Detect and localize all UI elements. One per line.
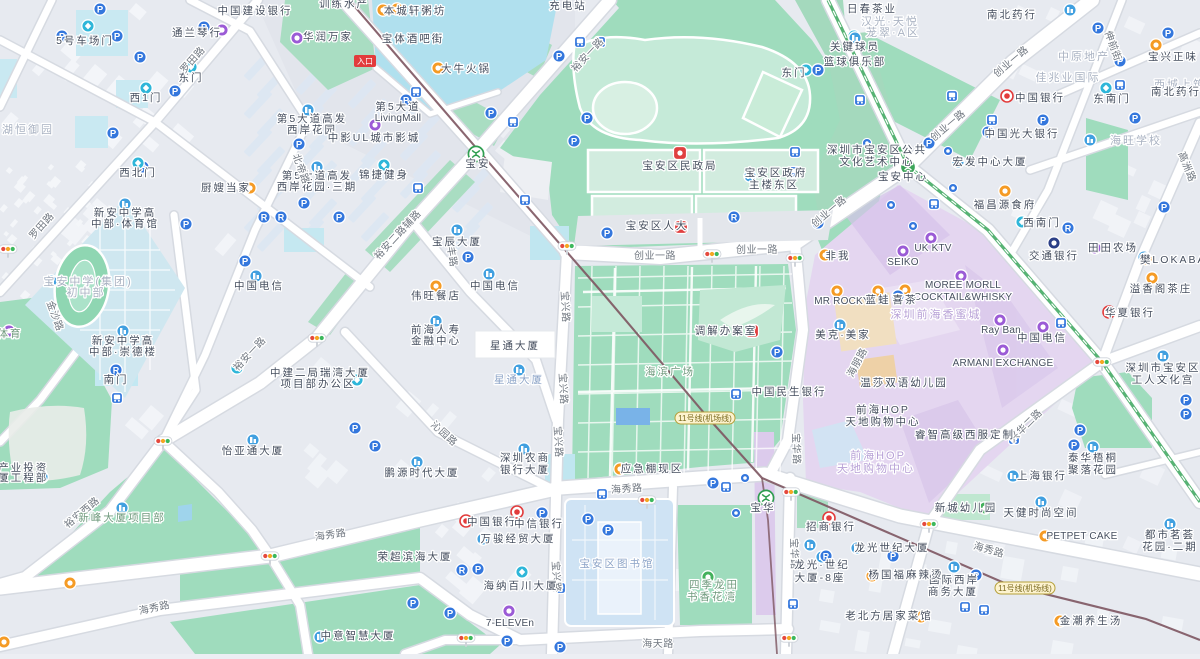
svg-text:新城幼儿园: 新城幼儿园 (935, 501, 998, 514)
svg-text:第5大道: 第5大道 (375, 100, 420, 113)
svg-text:田田农场: 田田农场 (1088, 241, 1138, 254)
svg-text:通兰琴行: 通兰琴行 (172, 26, 222, 39)
svg-text:鹏源时代大厦: 鹏源时代大厦 (385, 466, 460, 479)
svg-text:初中部: 初中部 (67, 285, 106, 299)
svg-text:中国建设银行: 中国建设银行 (218, 4, 293, 17)
svg-text:宝安区民政局: 宝安区民政局 (643, 159, 718, 172)
svg-text:中信银行: 中信银行 (514, 517, 564, 530)
svg-text:COCKTAIL&WHISKY: COCKTAIL&WHISKY (914, 292, 1013, 303)
svg-text:宝华: 宝华 (751, 501, 776, 514)
svg-text:11号线(机场线): 11号线(机场线) (678, 413, 732, 423)
svg-text:美克·美家: 美克·美家 (815, 328, 871, 341)
svg-text:5号车场门: 5号车场门 (56, 34, 114, 47)
svg-text:天地购物中心: 天地购物中心 (837, 461, 915, 475)
svg-text:ARMANI EXCHANGE: ARMANI EXCHANGE (953, 358, 1054, 369)
svg-text:主楼东区: 主楼东区 (749, 178, 799, 191)
svg-text:宝安: 宝安 (466, 157, 491, 170)
svg-text:海滨广场: 海滨广场 (645, 365, 695, 378)
svg-text:MR ROCKY: MR ROCKY (814, 296, 870, 307)
svg-text:本城轩粥坊: 本城轩粥坊 (384, 4, 447, 17)
svg-text:宝安中心: 宝安中心 (878, 170, 928, 183)
svg-text:樊LOKABAR: 樊LOKABAR (1140, 253, 1200, 266)
svg-text:西岸花园·三期: 西岸花园·三期 (277, 180, 358, 193)
svg-text:大厦-8座: 大厦-8座 (795, 571, 846, 584)
svg-text:蓝蛙: 蓝蛙 (866, 293, 891, 306)
svg-text:宝兴正味: 宝兴正味 (1148, 50, 1198, 63)
svg-text:龙光世纪大厦: 龙光世纪大厦 (855, 541, 930, 554)
svg-text:中部·崇德楼: 中部·崇德楼 (89, 345, 157, 358)
svg-text:怡亚通大厦: 怡亚通大厦 (222, 444, 285, 457)
svg-text:深圳前海香蜜城: 深圳前海香蜜城 (891, 307, 982, 321)
svg-text:都市茗荟: 都市茗荟 (1145, 528, 1195, 541)
svg-text:南北药行: 南北药行 (1151, 85, 1200, 98)
svg-text:中部·体育馆: 中部·体育馆 (91, 217, 159, 230)
svg-text:星通大厦: 星通大厦 (494, 373, 544, 386)
svg-text:PETPET CAKE: PETPET CAKE (1047, 531, 1118, 542)
svg-text:交通银行: 交通银行 (1029, 249, 1079, 262)
svg-text:龙光·世纪: 龙光·世纪 (794, 558, 850, 571)
svg-text:荣超滨海大厦: 荣超滨海大厦 (378, 550, 453, 563)
svg-text:福昌源食府: 福昌源食府 (974, 198, 1037, 211)
svg-text:应急棚现区: 应急棚现区 (621, 462, 684, 475)
svg-text:宝安中学(集团): 宝安中学(集团) (43, 274, 132, 288)
svg-text:非我: 非我 (826, 250, 851, 262)
svg-text:上海银行: 上海银行 (1017, 469, 1067, 482)
svg-text:佳兆业国际: 佳兆业国际 (1036, 70, 1101, 84)
svg-text:金潮养生汤: 金潮养生汤 (1060, 614, 1123, 627)
svg-text:老北方居家菜馆: 老北方居家菜馆 (845, 609, 933, 622)
svg-text:南北药行: 南北药行 (987, 8, 1037, 21)
svg-text:7-ELEVEn: 7-ELEVEn (486, 618, 534, 629)
svg-text:书香花湾: 书香花湾 (687, 590, 737, 603)
svg-text:UK KTV: UK KTV (914, 243, 951, 254)
svg-text:商务大厦: 商务大厦 (928, 585, 978, 598)
svg-text:东门: 东门 (782, 66, 807, 79)
svg-text:大厦工程部: 大厦工程部 (0, 471, 48, 484)
svg-text:四季龙田: 四季龙田 (689, 578, 739, 591)
svg-text:工人文化宫: 工人文化宫 (1132, 373, 1195, 386)
svg-text:大牛火锅: 大牛火锅 (441, 62, 491, 75)
svg-text:中原地产: 中原地产 (1058, 49, 1110, 63)
svg-text:体育: 体育 (0, 327, 23, 340)
svg-text:东南门: 东南门 (1093, 92, 1131, 105)
svg-text:中国电信: 中国电信 (1017, 331, 1067, 344)
svg-text:创业一路: 创业一路 (736, 243, 778, 256)
svg-text:调解办案室: 调解办案室 (695, 324, 758, 337)
svg-text:聚落花园: 聚落花园 (1068, 463, 1118, 476)
svg-text:11号线(机场线): 11号线(机场线) (998, 583, 1052, 593)
svg-text:深圳市宝安区公共: 深圳市宝安区公共 (827, 143, 927, 156)
svg-text:中国民生银行: 中国民生银行 (752, 385, 827, 398)
svg-text:睿智高级西服定制: 睿智高级西服定制 (915, 428, 1015, 441)
svg-text:溢香阁茶庄: 溢香阁茶庄 (1130, 282, 1193, 295)
svg-text:茏翠·A区: 茏翠·A区 (866, 26, 920, 39)
svg-text:锦捷健身: 锦捷健身 (359, 168, 409, 181)
svg-text:喜茶: 喜茶 (893, 293, 918, 306)
svg-text:海纳百川大厦: 海纳百川大厦 (484, 579, 559, 592)
svg-text:西南门: 西南门 (1023, 216, 1061, 229)
svg-text:星通大厦: 星通大厦 (490, 339, 540, 352)
svg-text:杨国福麻辣烫: 杨国福麻辣烫 (869, 568, 944, 581)
svg-text:SEIKO: SEIKO (887, 257, 919, 268)
svg-text:篮球俱乐部: 篮球俱乐部 (824, 55, 887, 68)
svg-text:宝华路: 宝华路 (789, 433, 803, 465)
svg-text:华润万家: 华润万家 (303, 30, 353, 43)
svg-text:宝安区政府: 宝安区政府 (745, 166, 808, 179)
svg-text:中影UL城市影城: 中影UL城市影城 (328, 131, 420, 144)
svg-text:南门: 南门 (104, 373, 129, 386)
svg-text:金融中心: 金融中心 (411, 334, 461, 347)
svg-text:花园·二期: 花园·二期 (1142, 540, 1198, 553)
svg-text:海天路: 海天路 (642, 637, 674, 650)
svg-text:项目部办公区: 项目部办公区 (281, 377, 356, 390)
svg-text:汉光·天悦: 汉光·天悦 (861, 14, 919, 28)
svg-text:宏发中心大厦: 宏发中心大厦 (953, 155, 1028, 168)
svg-text:湖恒御园: 湖恒御园 (2, 122, 54, 136)
svg-text:伟旺餐店: 伟旺餐店 (411, 289, 461, 302)
svg-text:入口: 入口 (357, 57, 373, 66)
svg-text:新峰大厦项目部: 新峰大厦项目部 (78, 511, 166, 524)
svg-text:宝安区人大: 宝安区人大 (626, 219, 689, 232)
svg-text:温莎双语幼儿园: 温莎双语幼儿园 (860, 376, 948, 389)
svg-text:海旺学校: 海旺学校 (1110, 133, 1162, 147)
svg-text:西1门: 西1门 (130, 91, 163, 104)
svg-text:中国电信: 中国电信 (234, 279, 284, 292)
svg-text:天健时尚空间: 天健时尚空间 (1004, 506, 1079, 519)
svg-text:天地购物中心: 天地购物中心 (846, 415, 921, 428)
svg-text:深圳农商: 深圳农商 (500, 451, 550, 464)
svg-text:中意智慧大厦: 中意智慧大厦 (321, 629, 396, 642)
svg-text:充电站: 充电站 (549, 0, 587, 12)
svg-text:LivingMall: LivingMall (375, 113, 421, 124)
svg-text:深圳市宝安区: 深圳市宝安区 (1126, 361, 1200, 374)
svg-text:中国光大银行: 中国光大银行 (985, 127, 1060, 140)
svg-text:MOREE MORLL: MOREE MORLL (925, 280, 1001, 291)
svg-text:训练水产: 训练水产 (319, 0, 369, 10)
svg-text:西北门: 西北门 (119, 166, 157, 179)
svg-text:华夏银行: 华夏银行 (1105, 306, 1155, 319)
svg-text:Ray Ban: Ray Ban (981, 325, 1021, 336)
svg-text:日春茶业: 日春茶业 (847, 2, 897, 15)
svg-text:宝安区图书馆: 宝安区图书馆 (580, 557, 655, 570)
svg-text:前海HOP: 前海HOP (856, 403, 910, 416)
svg-text:中国电信: 中国电信 (470, 279, 520, 292)
svg-text:中国银行: 中国银行 (1015, 91, 1065, 104)
svg-text:泰华梧桐: 泰华梧桐 (1068, 451, 1118, 464)
svg-text:中国银行: 中国银行 (467, 515, 517, 528)
svg-text:创业一路: 创业一路 (634, 249, 676, 262)
svg-text:厨嫂当家: 厨嫂当家 (201, 181, 251, 194)
svg-text:宝体酒吧街: 宝体酒吧街 (382, 32, 445, 45)
svg-text:文化艺术中心: 文化艺术中心 (840, 155, 915, 168)
svg-text:前海HOP: 前海HOP (850, 448, 906, 462)
svg-text:银行大厦: 银行大厦 (500, 463, 550, 476)
svg-text:关键球员: 关键球员 (830, 40, 880, 53)
svg-text:万骏经贸大厦: 万骏经贸大厦 (481, 532, 556, 545)
svg-text:招商银行: 招商银行 (806, 520, 856, 533)
svg-text:宝辰大厦: 宝辰大厦 (432, 235, 482, 248)
